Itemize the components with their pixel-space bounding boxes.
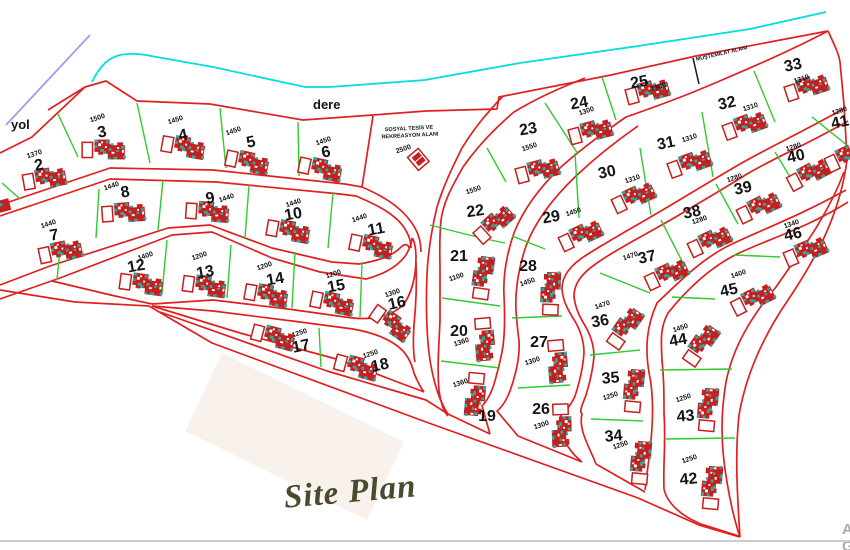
svg-text:28: 28 bbox=[519, 258, 537, 275]
svg-text:30: 30 bbox=[597, 162, 618, 182]
svg-text:37: 37 bbox=[637, 247, 658, 267]
svg-text:14: 14 bbox=[265, 270, 286, 290]
svg-text:A: A bbox=[842, 521, 850, 538]
svg-text:22: 22 bbox=[465, 202, 485, 221]
svg-text:35: 35 bbox=[601, 369, 620, 387]
svg-text:33: 33 bbox=[783, 55, 804, 75]
svg-text:31: 31 bbox=[656, 133, 677, 153]
svg-text:32: 32 bbox=[717, 93, 738, 113]
svg-text:27: 27 bbox=[530, 334, 548, 351]
svg-text:21: 21 bbox=[450, 248, 468, 265]
svg-text:36: 36 bbox=[590, 312, 611, 332]
svg-text:42: 42 bbox=[679, 470, 698, 488]
svg-text:19: 19 bbox=[478, 408, 496, 425]
svg-text:45: 45 bbox=[719, 280, 740, 300]
svg-text:23: 23 bbox=[518, 120, 539, 140]
svg-text:yol: yol bbox=[11, 117, 30, 132]
svg-text:43: 43 bbox=[676, 407, 695, 425]
svg-text:G: G bbox=[842, 538, 850, 550]
svg-text:44: 44 bbox=[668, 331, 689, 351]
svg-text:11: 11 bbox=[366, 220, 386, 240]
svg-text:29: 29 bbox=[541, 208, 562, 228]
svg-text:26: 26 bbox=[532, 401, 550, 418]
svg-text:dere: dere bbox=[313, 97, 340, 112]
svg-text:25: 25 bbox=[629, 73, 650, 93]
svg-text:18: 18 bbox=[370, 355, 391, 375]
svg-text:17: 17 bbox=[291, 336, 312, 356]
svg-text:13: 13 bbox=[195, 263, 216, 283]
